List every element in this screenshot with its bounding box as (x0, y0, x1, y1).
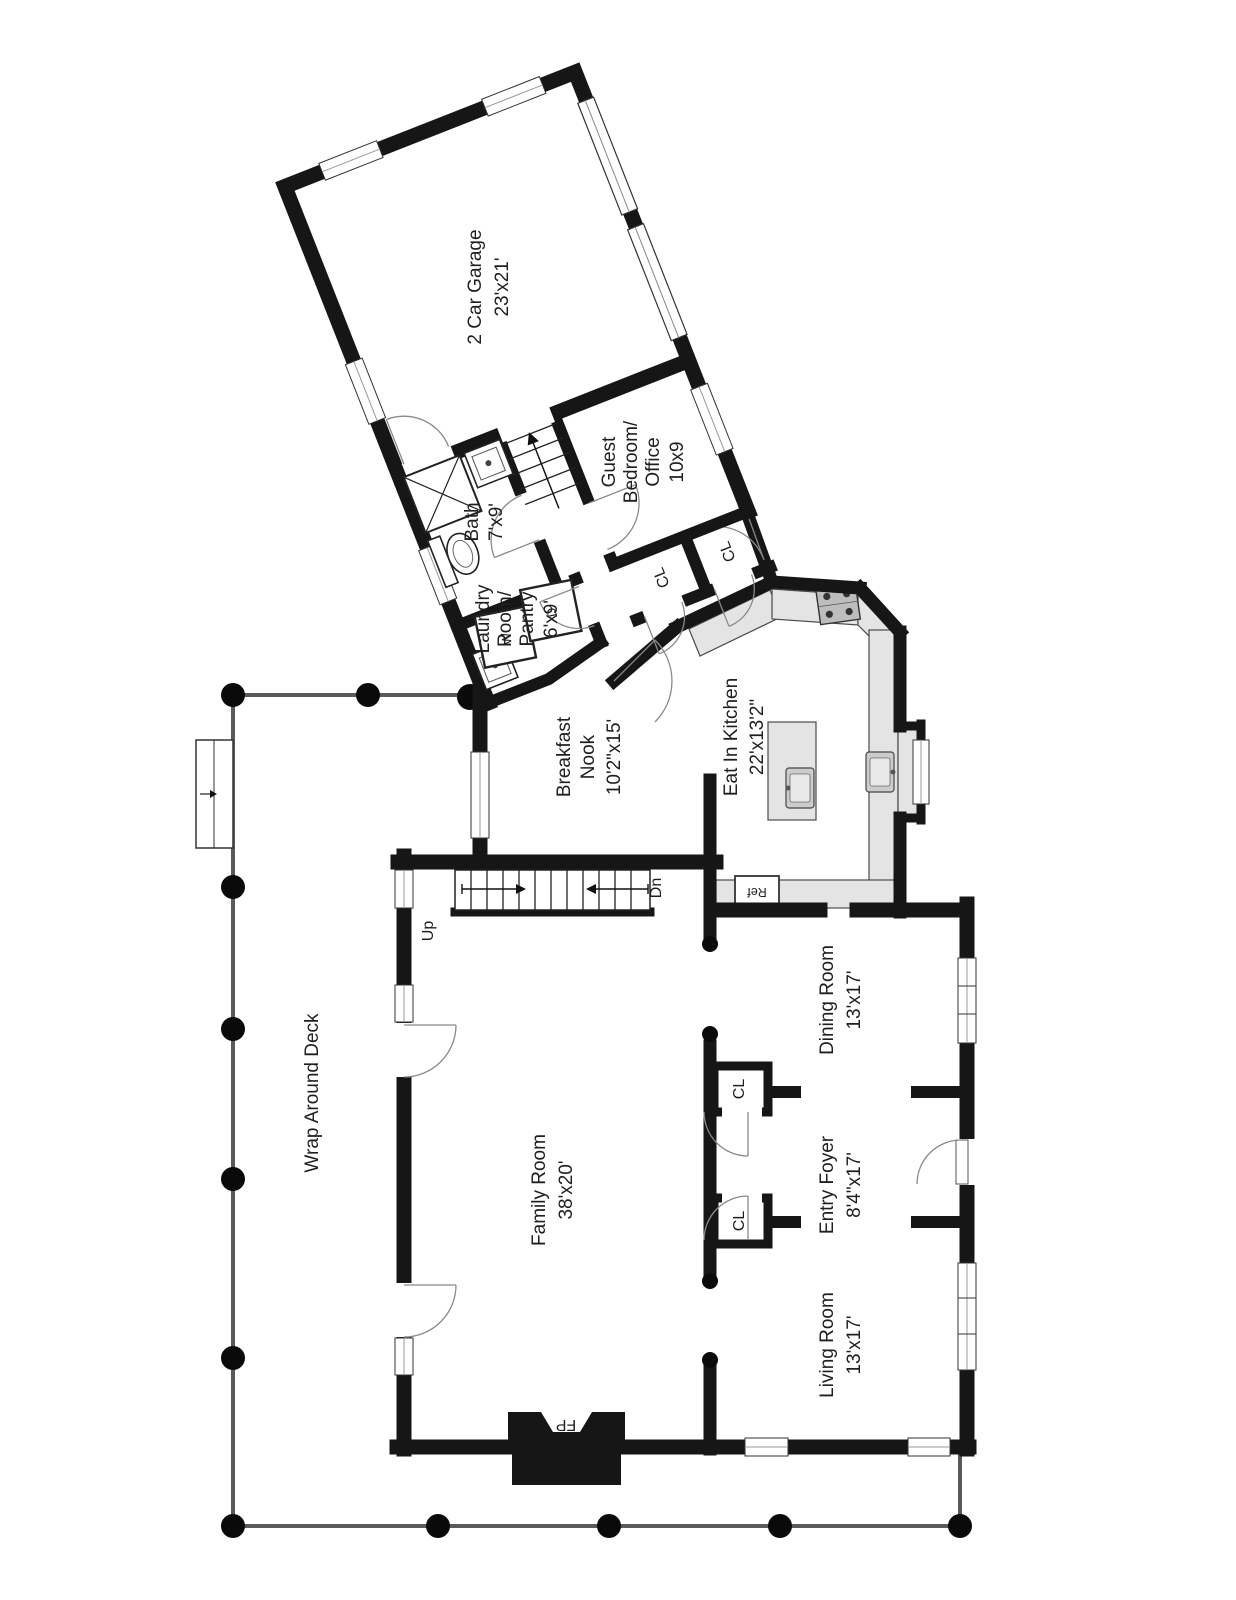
deck-rails (233, 695, 960, 1526)
fireplace-label: FP (556, 1416, 576, 1433)
closet2-door-gap (722, 1192, 762, 1204)
laundry-label-1: Laundry (473, 584, 494, 653)
bath-dims: 7'x9' (486, 503, 507, 541)
kitchen-label: Eat In Kitchen (721, 678, 742, 796)
wing-closet1-label: CL (650, 565, 673, 590)
deck-steps (196, 740, 233, 848)
bath-label: Bath (462, 502, 483, 541)
breakfast-nook-dims: 10'2"x15' (604, 719, 625, 795)
family-deck-door2-gap (395, 1283, 413, 1337)
laundry-dims: 6'x9' (541, 600, 562, 638)
family-label: Family Room (529, 1134, 550, 1246)
family-deck-door1-gap (395, 1023, 413, 1077)
living-dims: 13'x17' (844, 1315, 865, 1374)
refrigerator-label: Ref (747, 885, 767, 899)
bay-sink-icon (866, 752, 896, 792)
guest-bedroom-label-3: Office (643, 437, 664, 486)
garage-label: 2 Car Garage (465, 229, 486, 344)
living-label: Living Room (817, 1292, 838, 1398)
breakfast-nook-label-1: Breakfast (554, 716, 575, 797)
family-dims: 38'x20' (556, 1160, 577, 1219)
guest-bedroom-label-2: Bedroom/ (621, 420, 642, 503)
stairs-up-label: Up (420, 921, 437, 942)
foyer-dims: 8'4"x17' (844, 1152, 865, 1218)
floor-plan-page: W D CL CL (0, 0, 1236, 1600)
deck-columns (221, 683, 972, 1538)
guest-bedroom-dims: 10x9 (667, 441, 688, 482)
closet1-label: CL (731, 1079, 748, 1100)
laundry-label-2: Room/ (495, 590, 516, 647)
floor-plan-canvas: W D CL CL (0, 0, 1236, 1600)
main-staircase (455, 870, 650, 910)
laundry-label-3: Pantry (517, 591, 538, 646)
closet1-door-gap (722, 1106, 762, 1118)
island-sink-icon (786, 768, 815, 808)
front-door-leaf (956, 1140, 968, 1184)
dining-dims: 13'x17' (844, 970, 865, 1029)
kitchen-dims: 22'x13'2" (747, 699, 768, 775)
foyer-label: Entry Foyer (817, 1135, 838, 1234)
garage-dims: 23'x21' (492, 257, 513, 316)
guest-bedroom-label-1: Guest (599, 436, 620, 487)
dining-label: Dining Room (817, 945, 838, 1055)
breakfast-nook-label-2: Nook (578, 734, 599, 779)
wing-closet2-label: CL (716, 539, 739, 564)
deck-label: Wrap Around Deck (302, 1013, 323, 1173)
stairs-down-label: Dn (648, 878, 665, 898)
closet2-label: CL (731, 1211, 748, 1232)
